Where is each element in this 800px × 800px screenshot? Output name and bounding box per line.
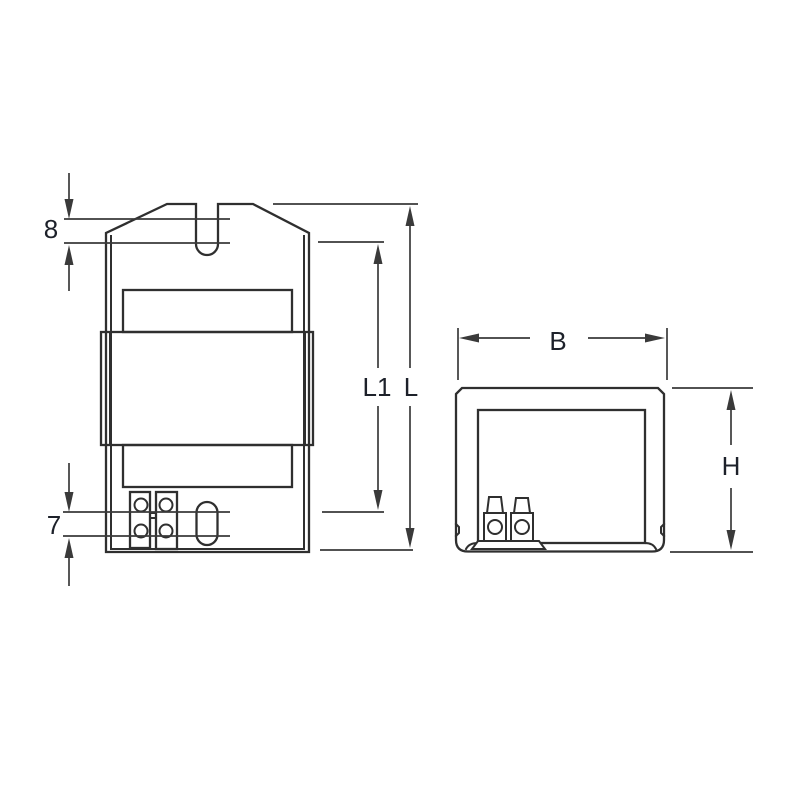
front-mounting-slot	[197, 502, 218, 545]
front-core-band	[101, 332, 313, 445]
dim-h-arrow-down	[727, 530, 736, 550]
dim-7-arrow-up	[65, 538, 74, 558]
dim-label-terminal-offset: 7	[47, 510, 61, 540]
front-upper-coil	[123, 290, 292, 332]
dim-label-inner-length: L1	[363, 372, 392, 402]
side-view: B H	[456, 326, 753, 552]
terminal-cap	[514, 498, 530, 513]
dim-l-arrow-up	[406, 206, 415, 226]
dimension-b: B	[458, 326, 667, 380]
side-terminal-plate	[472, 541, 545, 549]
dimension-8: 8	[44, 173, 230, 291]
dim-7-arrow-down	[65, 492, 74, 512]
dimension-l: L	[273, 204, 418, 550]
dim-8-arrow-up	[65, 245, 74, 265]
front-lower-coil	[123, 445, 292, 487]
terminal-cap	[487, 497, 503, 513]
side-right-edge-curl	[645, 543, 656, 549]
side-terminals	[484, 497, 533, 541]
terminal-screw	[135, 499, 148, 512]
dim-b-arrow-left	[459, 334, 479, 343]
dim-h-arrow-up	[727, 390, 736, 410]
dim-label-height: H	[722, 451, 741, 481]
front-terminal-block	[130, 492, 177, 549]
dimension-l1: L1	[318, 242, 391, 512]
terminal-screw	[488, 520, 502, 534]
ballast-dimension-drawing: 8 7 L1 L	[0, 0, 800, 800]
front-view: 8 7 L1 L	[44, 173, 418, 586]
dim-8-arrow-down	[65, 199, 74, 219]
dimension-h: H	[670, 388, 753, 552]
terminal-screw	[515, 520, 529, 534]
dim-l-arrow-down	[406, 528, 415, 548]
dim-l1-arrow-down	[374, 490, 383, 510]
dim-label-slot-depth: 8	[44, 214, 58, 244]
dim-label-overall-length: L	[404, 372, 418, 402]
dim-label-width: B	[549, 326, 566, 356]
technical-drawing-page: 8 7 L1 L	[0, 0, 800, 800]
dim-b-arrow-right	[645, 334, 665, 343]
terminal-screw	[160, 499, 173, 512]
dim-l1-arrow-up	[374, 244, 383, 264]
